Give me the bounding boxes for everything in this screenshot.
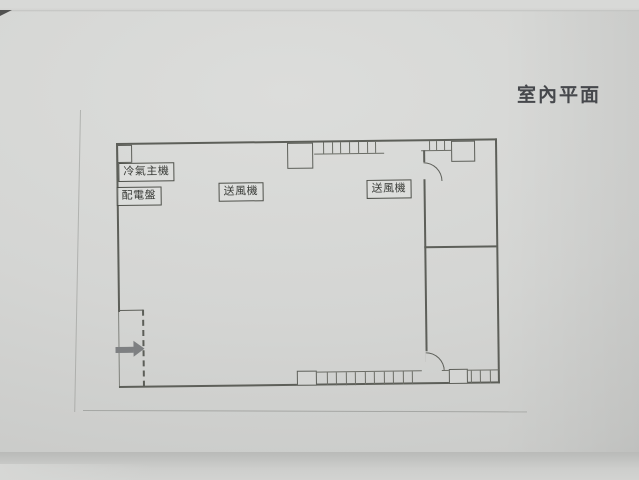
photo-of-floor-plan: 室內平面: [0, 0, 639, 480]
floor-plan: 冷氣主機 配電盤 送風機 送風機: [116, 138, 500, 388]
column-marker: [117, 145, 132, 163]
interior-wall-divider: [424, 245, 497, 247]
paper-fold-line: [74, 110, 81, 412]
interior-wall-vertical: [423, 179, 427, 351]
entrance-arrow-icon: [115, 341, 145, 358]
window-hatch-top-right: [421, 141, 451, 151]
label-blower-left: 送風機: [218, 182, 263, 202]
drawing-border-line: [83, 410, 527, 412]
column-marker: [297, 371, 317, 386]
door-swing-arc-bottom: [426, 352, 445, 371]
table-surface: [0, 452, 639, 480]
paper-sheet: 室內平面: [0, 10, 639, 468]
door-swing-arc-top: [423, 162, 442, 181]
photo-corner-shadow: [0, 10, 12, 19]
entrance-arrow-head: [133, 341, 144, 357]
column-marker: [287, 143, 313, 169]
interior-wall-stub: [423, 150, 425, 162]
table-highlight: [0, 464, 190, 480]
wall-right: [495, 138, 500, 383]
window-hatch-bottom-left: [317, 370, 422, 385]
column-marker: [451, 141, 475, 162]
entrance-arrow-shaft: [115, 346, 133, 352]
window-hatch-top-left: [314, 142, 384, 155]
label-blower-right: 送風機: [366, 179, 411, 199]
column-marker: [449, 369, 468, 384]
entrance-notch-line: [118, 310, 143, 311]
paper-top-edge: [0, 10, 639, 12]
label-ac-main-unit: 冷氣主機: [118, 162, 174, 182]
page-title: 室內平面: [517, 80, 601, 107]
label-distribution-panel: 配電盤: [117, 186, 162, 206]
